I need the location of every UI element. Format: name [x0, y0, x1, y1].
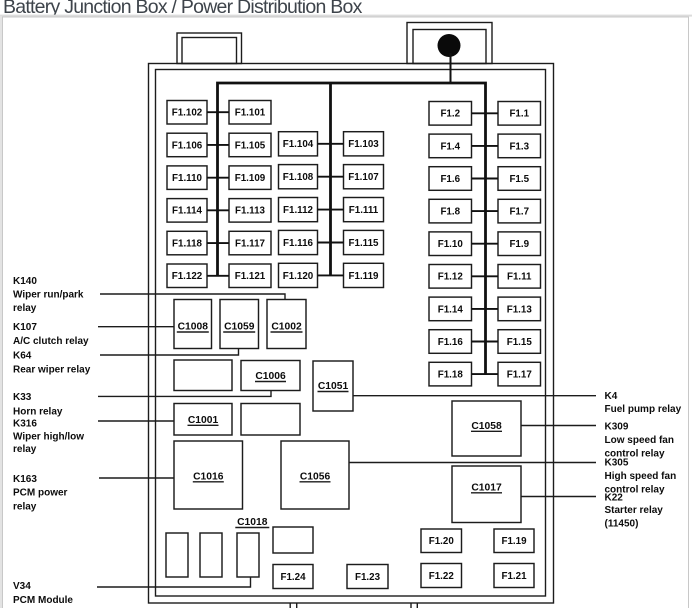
- svg-text:(11450): (11450): [605, 518, 639, 529]
- svg-text:PCM Module: PCM Module: [13, 595, 73, 606]
- svg-text:F1.6: F1.6: [440, 174, 460, 185]
- svg-text:F1.116: F1.116: [283, 238, 314, 249]
- svg-text:F1.4: F1.4: [440, 141, 460, 152]
- svg-text:C1017: C1017: [471, 483, 502, 494]
- svg-text:F1.18: F1.18: [438, 370, 464, 381]
- svg-text:Wiper high/low: Wiper high/low: [13, 432, 84, 443]
- svg-text:F1.110: F1.110: [172, 173, 203, 184]
- svg-text:F1.111: F1.111: [349, 205, 379, 216]
- svg-text:F1.7: F1.7: [509, 207, 529, 218]
- svg-text:C1016: C1016: [193, 472, 224, 483]
- svg-text:K4: K4: [605, 391, 618, 402]
- svg-text:C1006: C1006: [255, 371, 286, 382]
- svg-text:High speed fan: High speed fan: [605, 471, 677, 482]
- svg-text:A/C clutch relay: A/C clutch relay: [13, 336, 89, 347]
- svg-text:F1.113: F1.113: [235, 206, 266, 217]
- svg-text:C1008: C1008: [178, 322, 209, 333]
- svg-text:F1.120: F1.120: [283, 271, 314, 282]
- svg-text:relay: relay: [13, 444, 37, 455]
- svg-text:F1.102: F1.102: [172, 108, 203, 119]
- svg-text:K163: K163: [13, 474, 37, 485]
- svg-text:F1.103: F1.103: [348, 139, 379, 150]
- svg-text:F1.106: F1.106: [172, 140, 203, 151]
- svg-text:C1058: C1058: [471, 421, 502, 432]
- svg-text:F1.13: F1.13: [507, 304, 533, 315]
- svg-text:F1.9: F1.9: [509, 239, 529, 250]
- svg-text:F1.5: F1.5: [509, 174, 529, 185]
- svg-text:F1.119: F1.119: [349, 271, 380, 282]
- svg-text:F1.15: F1.15: [507, 337, 533, 348]
- svg-text:Low speed fan: Low speed fan: [605, 435, 674, 446]
- svg-text:C1056: C1056: [300, 472, 331, 483]
- svg-text:F1.105: F1.105: [235, 140, 266, 151]
- svg-text:C1059: C1059: [224, 322, 255, 333]
- svg-text:Rear wiper relay: Rear wiper relay: [13, 365, 91, 376]
- svg-text:K305: K305: [605, 458, 629, 469]
- svg-text:F1.109: F1.109: [235, 173, 266, 184]
- svg-text:F1.22: F1.22: [429, 571, 455, 582]
- svg-text:C1018: C1018: [237, 517, 268, 528]
- svg-text:K64: K64: [13, 351, 32, 362]
- svg-text:F1.2: F1.2: [440, 109, 460, 120]
- svg-text:F1.117: F1.117: [235, 239, 266, 250]
- svg-text:K22: K22: [605, 492, 624, 503]
- svg-text:Fuel pump relay: Fuel pump relay: [605, 404, 682, 415]
- svg-text:Starter relay: Starter relay: [605, 505, 664, 516]
- svg-text:Horn relay: Horn relay: [13, 406, 63, 417]
- svg-text:F1.118: F1.118: [172, 239, 203, 250]
- svg-text:F1.20: F1.20: [429, 536, 455, 547]
- svg-text:F1.115: F1.115: [349, 238, 380, 249]
- svg-text:F1.107: F1.107: [348, 172, 379, 183]
- svg-text:K316: K316: [13, 419, 37, 430]
- svg-text:F1.122: F1.122: [172, 271, 203, 282]
- svg-text:F1.24: F1.24: [280, 572, 306, 583]
- svg-text:F1.21: F1.21: [501, 571, 527, 582]
- svg-text:F1.19: F1.19: [501, 536, 527, 547]
- svg-text:F1.121: F1.121: [235, 271, 266, 282]
- svg-text:F1.108: F1.108: [283, 172, 314, 183]
- svg-text:F1.23: F1.23: [355, 572, 381, 583]
- svg-text:F1.8: F1.8: [440, 207, 460, 218]
- svg-text:Wiper run/park: Wiper run/park: [13, 290, 84, 301]
- svg-text:F1.11: F1.11: [507, 272, 532, 283]
- svg-text:F1.112: F1.112: [283, 205, 314, 216]
- svg-text:K33: K33: [13, 392, 32, 403]
- svg-text:relay: relay: [13, 303, 37, 314]
- svg-text:F1.114: F1.114: [172, 206, 203, 217]
- svg-text:F1.14: F1.14: [438, 304, 464, 315]
- svg-text:F1.12: F1.12: [438, 272, 464, 283]
- svg-text:relay: relay: [13, 501, 37, 512]
- svg-text:K140: K140: [13, 276, 37, 287]
- svg-text:K309: K309: [605, 421, 629, 432]
- svg-text:C1002: C1002: [271, 322, 302, 333]
- svg-text:K107: K107: [13, 322, 37, 333]
- svg-text:F1.1: F1.1: [509, 109, 529, 120]
- svg-text:F1.3: F1.3: [509, 141, 529, 152]
- svg-text:C1001: C1001: [188, 415, 219, 426]
- svg-text:F1.10: F1.10: [438, 239, 464, 250]
- svg-text:F1.16: F1.16: [438, 337, 464, 348]
- svg-text:C1051: C1051: [318, 381, 349, 392]
- svg-text:F1.17: F1.17: [507, 370, 533, 381]
- svg-text:F1.104: F1.104: [283, 139, 314, 150]
- svg-text:V34: V34: [13, 581, 31, 592]
- svg-text:F1.101: F1.101: [235, 108, 266, 119]
- svg-text:PCM power: PCM power: [13, 488, 68, 499]
